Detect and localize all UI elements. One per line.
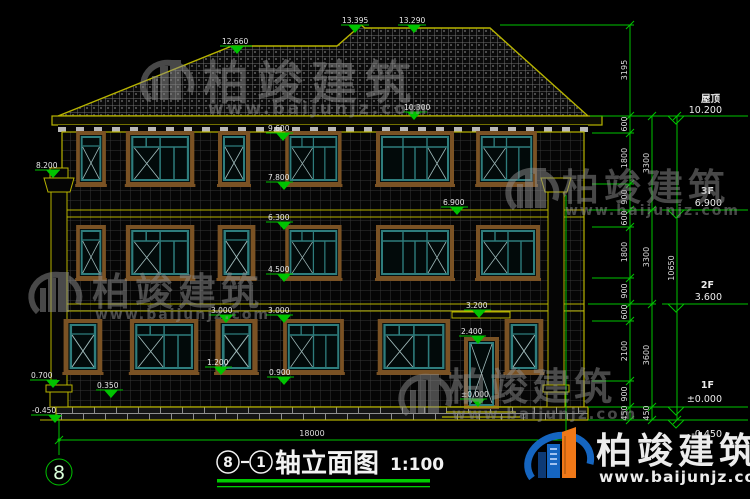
marker-f1-sill-left: 1.200 bbox=[207, 358, 229, 367]
axis-bubble: 8 bbox=[46, 459, 72, 485]
dim-3300: 3300 bbox=[642, 247, 651, 267]
drawing-canvas: 12.660 13.395 13.290 10.300 8.200 9.600 … bbox=[0, 0, 750, 499]
marker-left-ridge: 12.660 bbox=[222, 37, 248, 46]
window bbox=[284, 133, 342, 187]
level-2f-name: 2F bbox=[701, 280, 714, 291]
dim-900: 900 bbox=[620, 283, 629, 298]
dim-3195: 3195 bbox=[620, 60, 629, 80]
drawing-scale: 1:100 bbox=[390, 455, 444, 475]
dentil-row bbox=[58, 125, 588, 132]
level-roof-name: 屋顶 bbox=[701, 94, 721, 105]
window bbox=[377, 321, 452, 375]
marker-f2-sill: 4.500 bbox=[268, 265, 290, 274]
watermark-brand: 柏竣建筑 bbox=[448, 365, 616, 409]
watermark-url: www.baijunjz.com bbox=[565, 203, 740, 219]
dim-600: 600 bbox=[620, 304, 629, 319]
window bbox=[125, 133, 196, 187]
window bbox=[75, 133, 107, 187]
title-underline-thick bbox=[217, 479, 430, 483]
marker-pilaster-top: 8.200 bbox=[36, 161, 58, 170]
level-1f-value: ±0.000 bbox=[687, 394, 722, 405]
marker-ridge: 13.290 bbox=[399, 16, 425, 25]
window bbox=[282, 321, 345, 375]
window bbox=[129, 321, 200, 375]
marker-plinth-top: 0.350 bbox=[97, 381, 119, 390]
marker-f3-head: 9.600 bbox=[268, 124, 290, 133]
company-logo-icon bbox=[528, 427, 591, 478]
level-roof-value: 10.200 bbox=[689, 105, 722, 116]
title-underline-thin bbox=[217, 486, 430, 487]
cad-elevation-drawing: 12.660 13.395 13.290 10.300 8.200 9.600 … bbox=[0, 0, 750, 499]
dim-2100: 2100 bbox=[620, 341, 629, 361]
title-axis-end: 1 bbox=[256, 455, 266, 471]
dim-1800: 1800 bbox=[620, 242, 629, 262]
dim-10650: 10650 bbox=[667, 255, 676, 280]
watermark-url: www.baijunjz.com bbox=[208, 99, 430, 119]
window bbox=[375, 227, 455, 281]
window bbox=[284, 227, 342, 281]
dim-900: 900 bbox=[620, 386, 629, 401]
marker-f3-floor: 6.900 bbox=[443, 198, 465, 207]
axis-bubble-number: 8 bbox=[53, 462, 65, 484]
dim-450: 450 bbox=[642, 405, 651, 420]
title-axis-start: 8 bbox=[223, 455, 233, 471]
overall-dimension-label: 18000 bbox=[299, 429, 324, 438]
marker-f3-sill: 7.800 bbox=[268, 173, 290, 182]
drawing-title: 轴立面图 bbox=[275, 448, 379, 479]
marker-porch-top: 3.200 bbox=[466, 301, 488, 310]
marker-ground-left: -0.450 bbox=[32, 406, 56, 415]
title-block: 8 1 轴立面图 1:100 bbox=[217, 448, 444, 487]
marker-gate-cap: 0.700 bbox=[31, 371, 53, 380]
marker-f1-sill-right: 0.900 bbox=[269, 368, 291, 377]
company-logo: 柏竣建筑 www.baijunjz.com bbox=[528, 427, 750, 486]
level-2f-value: 3.600 bbox=[695, 292, 722, 303]
company-logo-url: www.baijunjz.com bbox=[599, 468, 750, 486]
dim-600: 600 bbox=[620, 116, 629, 131]
window bbox=[217, 133, 251, 187]
marker-door-head: 2.400 bbox=[461, 327, 483, 336]
window bbox=[375, 133, 455, 187]
watermark-url: www.baijunjz.com bbox=[95, 307, 270, 323]
marker-f3-band: 6.300 bbox=[268, 213, 290, 222]
marker-f1-head-right: 3.000 bbox=[268, 306, 290, 315]
level-1f-name: 1F bbox=[701, 380, 714, 391]
window bbox=[475, 227, 541, 281]
marker-peak: 13.395 bbox=[342, 16, 368, 25]
company-logo-brand: 柏竣建筑 bbox=[596, 431, 750, 472]
dim-3600: 3600 bbox=[642, 345, 651, 365]
window bbox=[62, 321, 103, 375]
watermark-url: www.baijunjz.com bbox=[452, 405, 637, 423]
